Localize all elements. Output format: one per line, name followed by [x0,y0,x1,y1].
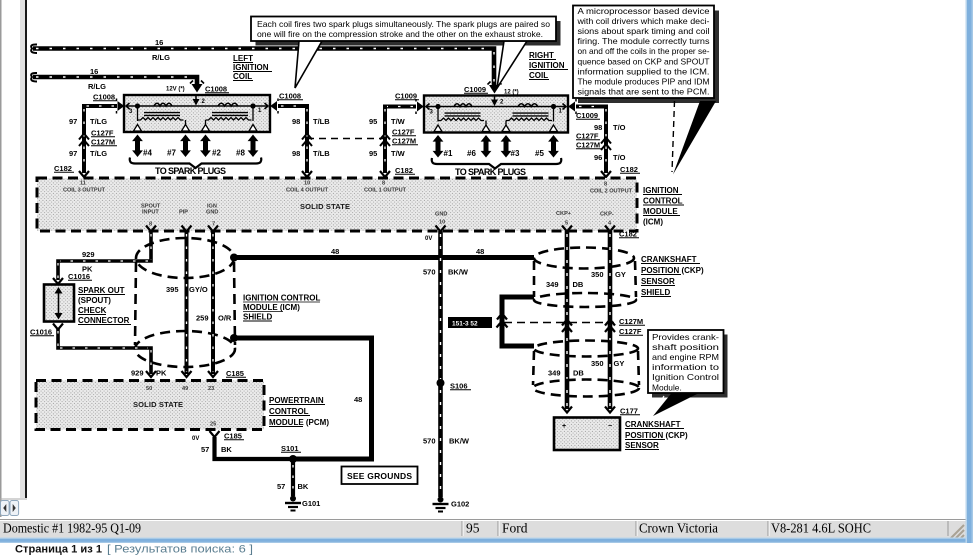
svg-text:0V: 0V [425,236,432,242]
svg-text:Domestic #1 1982-95 Q1-09: Domestic #1 1982-95 Q1-09 [3,521,141,536]
svg-text:CRANKSHAFT: CRANKSHAFT [625,420,681,429]
svg-text:on and off the coils in the pr: on and off the coils in the proper se- [578,46,710,56]
svg-text:SEE GROUNDS: SEE GROUNDS [347,471,412,481]
svg-text:V8-281 4.6L SOHC: V8-281 4.6L SOHC [771,521,871,536]
svg-text:CHECK: CHECK [78,306,107,315]
svg-text:97: 97 [69,149,77,158]
svg-text:SHIELD: SHIELD [243,313,273,322]
svg-text:8: 8 [382,181,385,187]
svg-text:T/LG: T/LG [90,117,107,126]
svg-text:16: 16 [90,67,98,76]
svg-text:C1009: C1009 [464,85,486,94]
svg-text:quence based on CKP and SPOUT: quence based on CKP and SPOUT [578,56,710,66]
svg-text:C127F: C127F [392,128,415,137]
svg-text:570: 570 [423,268,436,277]
svg-text:C127M: C127M [392,137,416,146]
svg-text:information supplied to the: information supplied to the ICM. [578,66,710,76]
svg-text:#5: #5 [535,149,544,158]
svg-text:POSITION (CKP): POSITION (CKP) [641,266,704,275]
svg-text:COIL: COIL [529,71,548,80]
svg-text:Ignition Control: Ignition Control [652,372,719,382]
svg-text:#7: #7 [167,149,176,158]
svg-text:Provides crank-: Provides crank- [652,332,719,342]
svg-text:C1009: C1009 [576,111,598,120]
svg-text:259: 259 [196,314,209,323]
svg-text:SPARK OUT: SPARK OUT [78,286,125,295]
svg-text:(ICM): (ICM) [643,218,663,227]
svg-text:A microprocessor based devi: A microprocessor based device [578,6,710,16]
svg-text:CONNECTOR: CONNECTOR [78,316,130,325]
svg-text:The module produces PIP and ID: The module produces PIP and IDM [578,77,710,87]
svg-text:Each coil fires two spark plug: Each coil fires two spark plugs simultan… [257,19,550,29]
svg-text:16: 16 [155,38,163,47]
svg-text:SHIELD: SHIELD [641,288,671,297]
svg-text:0V: 0V [192,436,199,442]
svg-text:SOLID STATE: SOLID STATE [133,400,183,409]
svg-text:349: 349 [548,369,561,378]
svg-text:RIGHT: RIGHT [529,51,554,60]
svg-text:POSITION (CKP): POSITION (CKP) [625,431,688,440]
svg-text:C1008: C1008 [93,93,115,102]
svg-text:C127M: C127M [576,141,600,150]
svg-text:TO SPARK PLUGS: TO SPARK PLUGS [155,166,226,176]
svg-text:#4: #4 [143,149,152,158]
svg-text:T/O: T/O [613,123,626,132]
svg-text:C127M: C127M [91,138,115,147]
svg-text:50: 50 [146,386,152,392]
svg-text:C1008: C1008 [205,85,227,94]
svg-text:[ Результатов поиска: 6 ]: [ Результатов поиска: 6 ] [107,544,253,556]
svg-text:8: 8 [604,182,607,188]
svg-text:BK: BK [298,482,309,491]
svg-text:COIL 4 OUTPUT: COIL 4 OUTPUT [286,188,329,194]
svg-text:5: 5 [565,221,568,227]
svg-text:R/LG: R/LG [152,53,170,62]
svg-text:929: 929 [82,250,95,259]
svg-text:C1016: C1016 [68,272,90,281]
svg-text:BK: BK [221,445,232,454]
svg-text:95: 95 [466,521,480,536]
svg-text:GY: GY [614,359,625,368]
svg-text:IGNITION: IGNITION [233,63,269,72]
svg-text:signals that are sent to the P: signals that are sent to the PCM. [578,87,710,97]
svg-text:96: 96 [594,153,602,162]
svg-text:INPUT: INPUT [142,210,159,216]
svg-text:11: 11 [80,181,86,187]
svg-text:#2: #2 [212,149,221,158]
svg-text:CKP-: CKP- [600,212,614,218]
svg-text:Ford: Ford [502,521,528,536]
svg-text:7: 7 [212,222,215,228]
svg-text:49: 49 [182,386,188,392]
svg-text:C177: C177 [620,407,638,416]
svg-text:95: 95 [369,149,377,158]
svg-text:Страница 1 из 1: Страница 1 из 1 [15,544,102,556]
svg-text:T/O: T/O [613,153,626,162]
svg-text:C1016: C1016 [30,328,52,337]
svg-text:395: 395 [166,285,179,294]
svg-text:12V (*): 12V (*) [166,87,185,93]
svg-text:C127M: C127M [619,317,643,326]
svg-text:POWERTRAIN: POWERTRAIN [269,396,324,405]
svg-text:C182: C182 [54,164,72,173]
svg-text:98: 98 [292,149,300,158]
svg-text:8: 8 [149,222,152,228]
svg-text:DB: DB [573,369,584,378]
svg-text:one will fire on the compressi: one will fire on the compression stroke … [257,29,543,39]
svg-text:350: 350 [591,359,604,368]
svg-text:IGNITION: IGNITION [643,186,679,195]
svg-text:C1008: C1008 [279,92,301,101]
svg-text:GY: GY [615,270,626,279]
svg-text:−: − [608,423,612,430]
svg-text:BK/W: BK/W [448,268,469,277]
svg-text:C1009: C1009 [395,92,417,101]
svg-text:O/R: O/R [218,314,232,323]
svg-text:TO SPARK PLUGS: TO SPARK PLUGS [455,167,526,177]
svg-text:+: + [562,423,566,430]
svg-text:LEFT: LEFT [233,54,253,63]
svg-text:MODULE (PCM): MODULE (PCM) [269,418,329,427]
svg-text:C182: C182 [395,166,413,175]
svg-text:BK/W: BK/W [449,437,470,446]
svg-text:and engine RPM: and engine RPM [652,352,719,362]
svg-text:SOLID STATE: SOLID STATE [300,202,350,211]
svg-text:SENSOR: SENSOR [625,441,659,450]
svg-text:CONTROL: CONTROL [643,197,683,206]
svg-text:GND: GND [435,212,447,218]
svg-text:DB: DB [573,280,584,289]
svg-text:#1: #1 [444,149,453,158]
svg-text:(SPOUT): (SPOUT) [78,296,111,305]
svg-text:570: 570 [423,437,436,446]
svg-text:C182: C182 [620,165,638,174]
svg-text:48: 48 [476,247,484,256]
svg-text:S106: S106 [450,382,468,391]
svg-text:349: 349 [546,280,559,289]
svg-text:#3: #3 [511,149,520,158]
svg-text:T/W: T/W [391,149,406,158]
svg-text:48: 48 [354,395,362,404]
svg-text:C127F: C127F [619,327,642,336]
svg-text:C127F: C127F [576,132,599,141]
svg-text:GND: GND [206,210,218,216]
svg-text:IGNITION: IGNITION [529,61,565,70]
svg-text:C185: C185 [226,369,244,378]
svg-text:with coil drivers which make d: with coil drivers which make deci- [576,16,709,26]
svg-text:sions about spark timing and c: sions about spark timing and coil [578,26,710,36]
svg-text:10: 10 [304,181,310,187]
svg-text:SENSOR: SENSOR [641,277,675,286]
svg-text:Crown Victoria: Crown Victoria [639,521,718,536]
svg-text:information to: information to [652,362,719,372]
svg-text:57: 57 [277,482,285,491]
svg-text:CRANKSHAFT: CRANKSHAFT [641,255,697,264]
svg-text:G101: G101 [302,499,320,508]
svg-text:T/LB: T/LB [313,149,330,158]
svg-text:CKP+: CKP+ [556,211,572,217]
svg-text:COIL 2 OUTPUT: COIL 2 OUTPUT [590,189,633,195]
svg-text:T/W: T/W [391,117,406,126]
svg-text:IGNITION CONTROL: IGNITION CONTROL [243,294,320,303]
svg-text:C185: C185 [224,432,242,441]
svg-text:23: 23 [208,386,214,392]
svg-text:25: 25 [210,422,216,428]
svg-text:T/LB: T/LB [313,117,330,126]
svg-text:G102: G102 [451,500,469,509]
svg-text:MODULE: MODULE [643,207,678,216]
svg-text:MODULE (ICM): MODULE (ICM) [243,303,300,312]
svg-text:#8: #8 [236,149,245,158]
svg-text:C182: C182 [619,230,637,239]
svg-text:CONTROL: CONTROL [269,407,309,416]
svg-text:firing. The module correctly t: firing. The module correctly turns [578,36,710,46]
svg-text:shaft position: shaft position [652,342,719,352]
svg-text:Module.: Module. [652,382,682,392]
svg-text:10: 10 [439,220,445,226]
svg-text:#6: #6 [467,149,476,158]
svg-text:C127F: C127F [91,129,114,138]
svg-text:98: 98 [292,117,300,126]
svg-text:95: 95 [369,117,377,126]
svg-text:T/LG: T/LG [90,149,107,158]
svg-text:151-3 52: 151-3 52 [452,321,478,328]
svg-text:COIL: COIL [233,72,252,81]
svg-text:PIP: PIP [179,210,188,216]
svg-text:350: 350 [591,270,604,279]
svg-text:R/LG: R/LG [88,82,106,91]
svg-text:COIL 3 OUTPUT: COIL 3 OUTPUT [63,188,106,194]
svg-text:929: 929 [131,369,144,378]
svg-text:97: 97 [69,117,77,126]
svg-text:57: 57 [201,445,209,454]
svg-text:COIL 1 OUTPUT: COIL 1 OUTPUT [364,188,407,194]
svg-text:S101: S101 [281,444,299,453]
svg-text:PK: PK [156,369,167,378]
svg-text:48: 48 [331,247,339,256]
svg-text:GY/O: GY/O [189,285,208,294]
